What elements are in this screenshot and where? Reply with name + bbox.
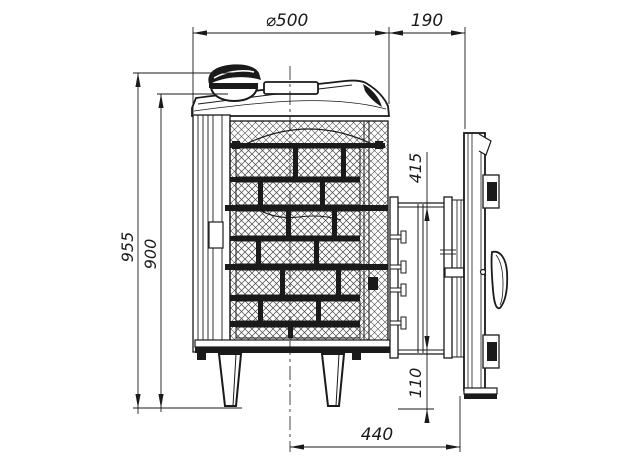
dim-overall-height-label: 955 <box>118 232 137 263</box>
ladle-scoop <box>208 64 261 101</box>
frame-foot <box>464 388 497 399</box>
front-leg <box>219 354 241 406</box>
side-latch <box>209 222 223 248</box>
dim-portal-height-label: 415 <box>406 153 425 184</box>
frame-top-bracket <box>479 134 491 155</box>
stove-body <box>192 64 507 406</box>
left-wall <box>193 115 230 352</box>
bottom-hinge <box>483 335 499 368</box>
dim-body-height-label: 900 <box>141 239 160 270</box>
chimney-collar <box>264 82 318 94</box>
stove-section-drawing: ⌀500 190 955 900 415 110 440 <box>0 0 624 460</box>
dim-portal-offset-label: 110 <box>406 368 425 399</box>
top-hinge <box>483 175 499 208</box>
dim-center-to-door-label: 440 <box>361 425 393 445</box>
rear-leg <box>322 354 344 406</box>
dim-diameter-label: ⌀500 <box>266 11 309 31</box>
dim-tunnel-length-label: 190 <box>411 11 443 31</box>
handle-pivot <box>481 270 486 275</box>
door-frame <box>464 133 507 399</box>
technical-drawing-page: ⌀500 190 955 900 415 110 440 <box>0 0 624 460</box>
